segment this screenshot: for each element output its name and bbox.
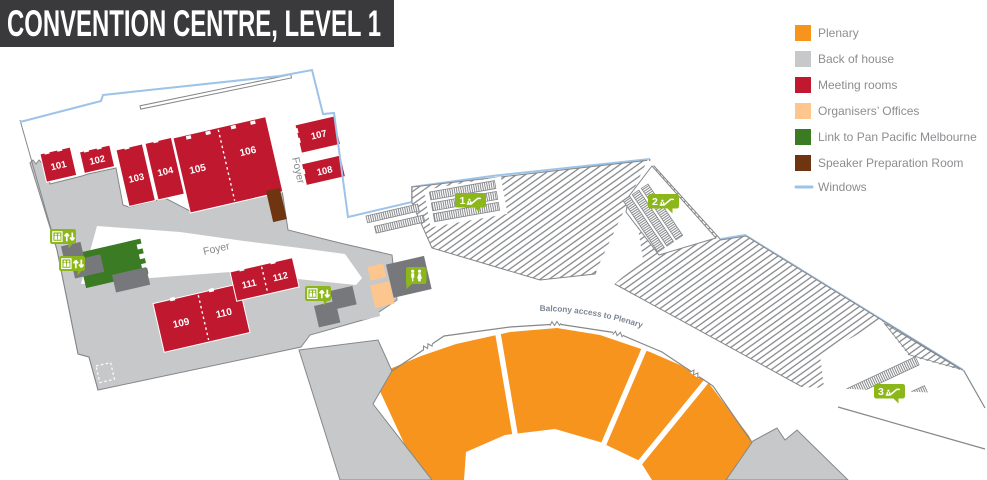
svg-text:1: 1 [460, 195, 466, 207]
svg-text:Organisers’ Offices: Organisers’ Offices [818, 104, 919, 118]
svg-text:2: 2 [652, 196, 658, 208]
svg-text:Meeting rooms: Meeting rooms [818, 78, 897, 92]
svg-text:Back of house: Back of house [818, 52, 894, 66]
svg-text:CONVENTION CENTRE, LEVEL 1: CONVENTION CENTRE, LEVEL 1 [7, 3, 381, 44]
svg-text:3: 3 [878, 386, 884, 398]
svg-text:Speaker Preparation Room: Speaker Preparation Room [818, 156, 963, 170]
svg-text:Windows: Windows [818, 180, 867, 194]
svg-text:Plenary: Plenary [818, 26, 859, 40]
svg-text:Link to Pan Pacific Melbourne: Link to Pan Pacific Melbourne [818, 130, 977, 144]
